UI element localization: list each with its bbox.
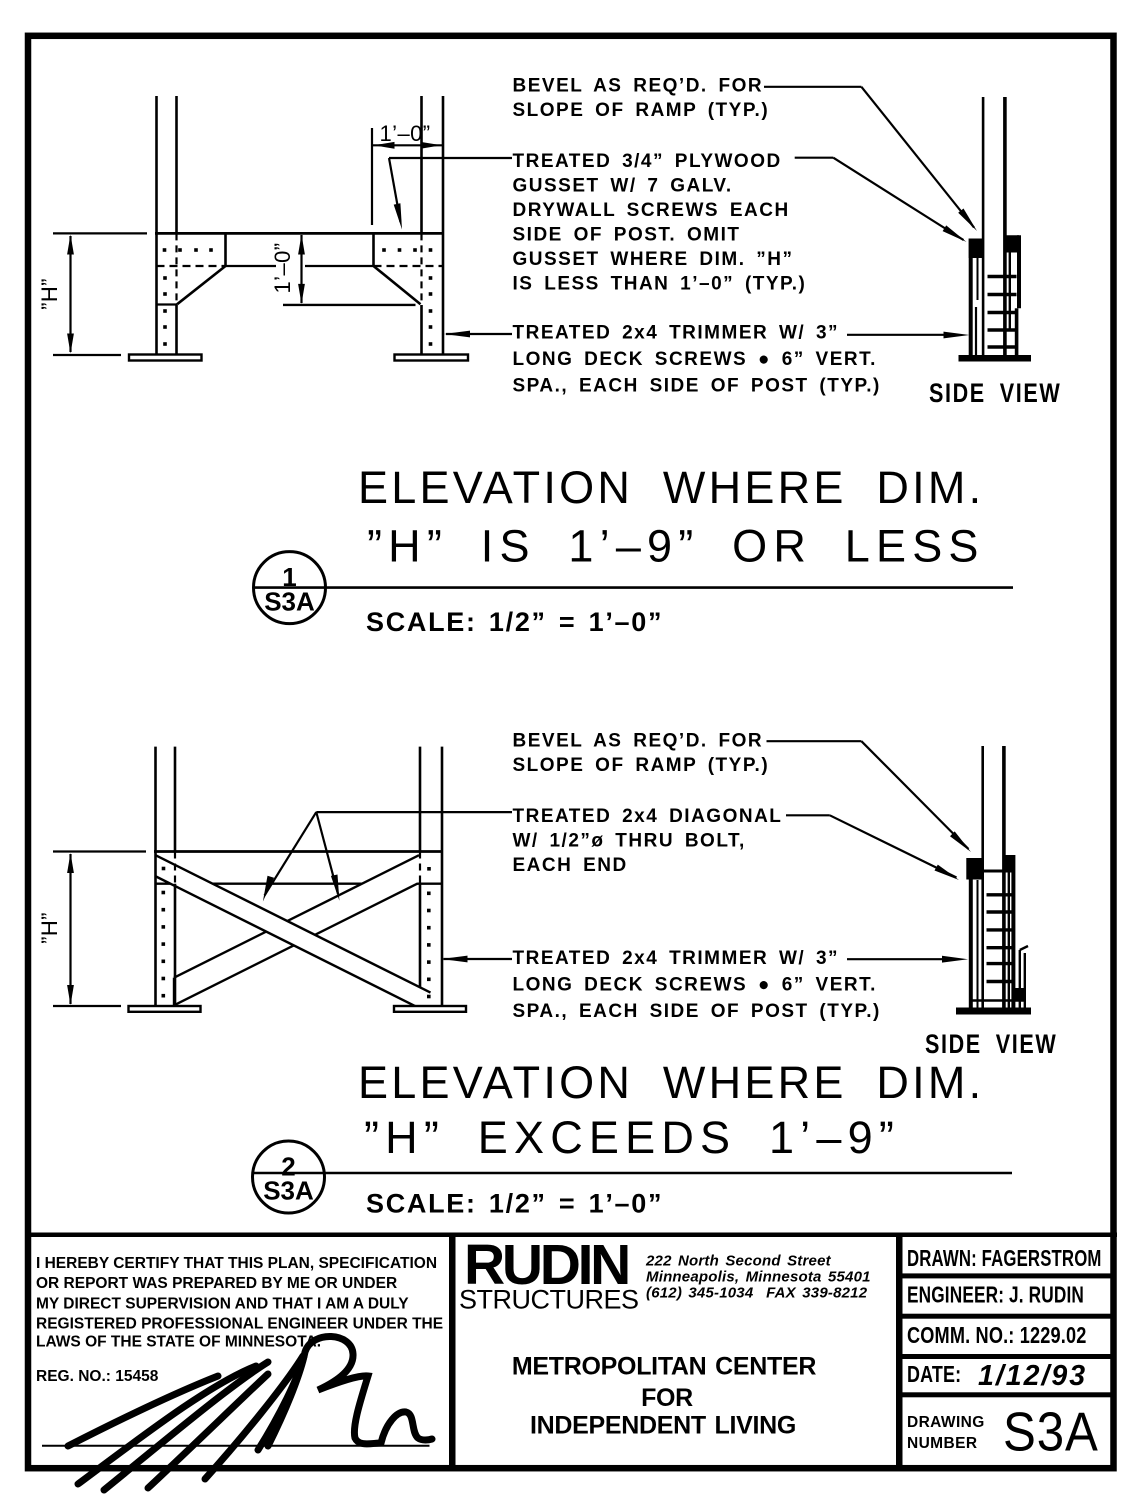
svg-text:”H” EXCEEDS 1’–9”: ”H” EXCEEDS 1’–9” (364, 1112, 900, 1163)
svg-text:”H”: ”H” (37, 278, 62, 310)
svg-text:MY DIRECT SUPERVISION AND THAT: MY DIRECT SUPERVISION AND THAT I AM A DU… (36, 1295, 409, 1312)
svg-text:S3A: S3A (264, 587, 315, 617)
svg-text:LAWS OF THE STATE OF MINNESOTA: LAWS OF THE STATE OF MINNESOTA. (36, 1334, 321, 1351)
svg-text:222 North Second Street: 222 North Second Street (645, 1253, 832, 1270)
svg-text:DRAWN: FAGERSTROM: DRAWN: FAGERSTROM (907, 1247, 1102, 1272)
svg-text:”H”: ”H” (37, 912, 62, 944)
svg-text:S3A: S3A (1003, 1402, 1099, 1463)
svg-text:REGISTERED PROFESSIONAL ENGINE: REGISTERED PROFESSIONAL ENGINEER UNDER T… (36, 1316, 443, 1333)
svg-text:REG. NO.: 15458: REG. NO.: 15458 (36, 1368, 159, 1385)
svg-text:LONG DECK SCREWS ● 6” VERT.: LONG DECK SCREWS ● 6” VERT. (513, 975, 877, 996)
svg-text:LONG DECK SCREWS ● 6” VERT.: LONG DECK SCREWS ● 6” VERT. (513, 349, 877, 370)
svg-text:TREATED 2x4 DIAGONAL: TREATED 2x4 DIAGONAL (513, 806, 783, 827)
svg-text:IS LESS THAN 1’–0” (TYP.): IS LESS THAN 1’–0” (TYP.) (513, 274, 807, 295)
svg-text:SIDE OF POST. OMIT: SIDE OF POST. OMIT (513, 225, 741, 246)
svg-text:ENGINEER: J. RUDIN: ENGINEER: J. RUDIN (907, 1283, 1084, 1308)
svg-text:(612) 345-1034 FAX 339-8212: (612) 345-1034 FAX 339-8212 (646, 1285, 868, 1302)
svg-text:NUMBER: NUMBER (907, 1435, 977, 1452)
svg-text:SPA., EACH SIDE OF POST (TYP.): SPA., EACH SIDE OF POST (TYP.) (513, 1001, 881, 1022)
svg-text:1’–0”: 1’–0” (270, 243, 295, 294)
svg-text:1/12/93: 1/12/93 (978, 1360, 1087, 1392)
svg-text:INDEPENDENT LIVING: INDEPENDENT LIVING (530, 1412, 796, 1440)
svg-text:BEVEL AS REQ’D. FOR: BEVEL AS REQ’D. FOR (513, 731, 764, 752)
svg-text:COMM. NO.: 1229.02: COMM. NO.: 1229.02 (907, 1323, 1086, 1349)
svg-text:METROPOLITAN CENTER: METROPOLITAN CENTER (512, 1353, 816, 1381)
svg-text:”H” IS 1’–9” OR LESS: ”H” IS 1’–9” OR LESS (367, 521, 985, 572)
svg-text:TREATED 2x4 TRIMMER W/ 3”: TREATED 2x4 TRIMMER W/ 3” (513, 948, 840, 969)
svg-text:SCALE: 1/2” = 1’–0”: SCALE: 1/2” = 1’–0” (366, 607, 663, 637)
svg-text:STRUCTURES: STRUCTURES (459, 1285, 639, 1315)
svg-text:BEVEL AS REQ’D. FOR: BEVEL AS REQ’D. FOR (513, 76, 764, 97)
svg-text:GUSSET WHERE DIM. ”H”: GUSSET WHERE DIM. ”H” (513, 249, 794, 270)
svg-text:1’–0”: 1’–0” (380, 121, 431, 146)
svg-text:SIDE VIEW: SIDE VIEW (925, 1030, 1057, 1060)
svg-text:DRYWALL SCREWS EACH: DRYWALL SCREWS EACH (513, 200, 790, 221)
svg-text:SPA., EACH SIDE OF POST (TYP.): SPA., EACH SIDE OF POST (TYP.) (513, 376, 881, 397)
svg-text:SCALE: 1/2” = 1’–0”: SCALE: 1/2” = 1’–0” (366, 1189, 663, 1219)
svg-text:ELEVATION WHERE DIM.: ELEVATION WHERE DIM. (358, 462, 984, 513)
svg-text:S3A: S3A (263, 1176, 314, 1206)
svg-text:TREATED 2x4 TRIMMER W/ 3”: TREATED 2x4 TRIMMER W/ 3” (513, 323, 840, 344)
svg-text:EACH END: EACH END (513, 855, 628, 876)
svg-text:W/ 1/2”ø THRU BOLT,: W/ 1/2”ø THRU BOLT, (513, 831, 746, 852)
svg-text:FOR: FOR (641, 1384, 693, 1412)
svg-text:SLOPE OF RAMP (TYP.): SLOPE OF RAMP (TYP.) (513, 100, 770, 121)
svg-text:I HEREBY CERTIFY THAT THIS PLA: I HEREBY CERTIFY THAT THIS PLAN, SPECIFI… (36, 1255, 437, 1272)
svg-text:ELEVATION WHERE DIM.: ELEVATION WHERE DIM. (358, 1057, 984, 1108)
svg-text:OR REPORT WAS PREPARED BY ME O: OR REPORT WAS PREPARED BY ME OR UNDER (36, 1275, 397, 1292)
svg-text:SLOPE OF RAMP (TYP.): SLOPE OF RAMP (TYP.) (513, 755, 770, 776)
svg-text:TREATED 3/4” PLYWOOD: TREATED 3/4” PLYWOOD (513, 151, 782, 172)
svg-text:DATE:: DATE: (907, 1362, 961, 1388)
svg-text:GUSSET W/ 7 GALV.: GUSSET W/ 7 GALV. (513, 176, 733, 197)
svg-text:Minneapolis, Minnesota 55401: Minneapolis, Minnesota 55401 (646, 1269, 871, 1286)
svg-text:SIDE VIEW: SIDE VIEW (929, 379, 1061, 409)
svg-text:DRAWING: DRAWING (907, 1414, 985, 1431)
